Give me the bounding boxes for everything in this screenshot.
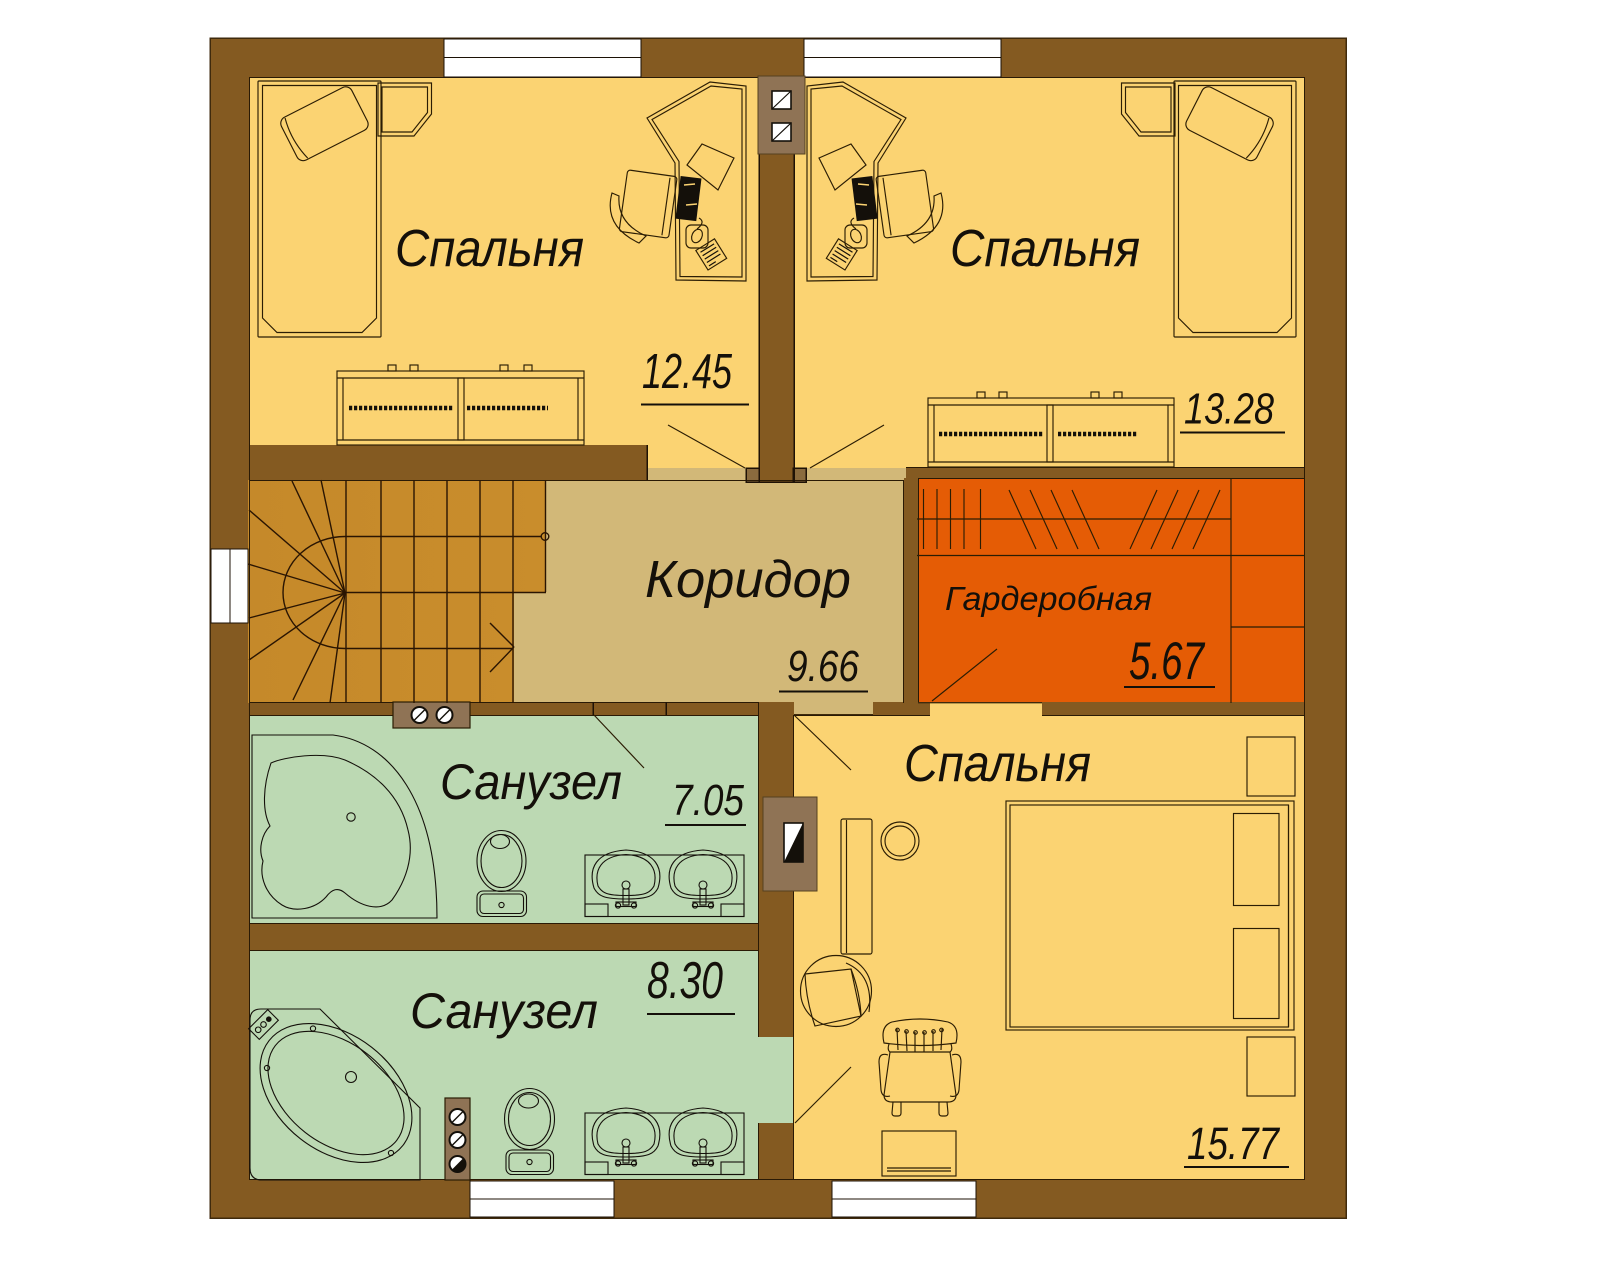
svg-text:12.45: 12.45 [642,345,733,399]
svg-text:9.66: 9.66 [787,642,859,691]
svg-text:5.67: 5.67 [1129,632,1206,691]
svg-text:Коридор: Коридор [645,551,851,609]
svg-text:Гардеробная: Гардеробная [945,580,1152,617]
svg-text:8.30: 8.30 [647,952,723,1010]
svg-text:7.05: 7.05 [672,776,744,825]
svg-text:Спальня: Спальня [950,220,1140,278]
svg-text:Санузел: Санузел [410,983,598,1039]
svg-text:Спальня: Спальня [904,735,1091,793]
svg-text:15.77: 15.77 [1187,1118,1281,1169]
svg-text:13.28: 13.28 [1184,385,1274,434]
svg-text:Санузел: Санузел [440,754,622,810]
svg-text:Спальня: Спальня [395,220,584,278]
